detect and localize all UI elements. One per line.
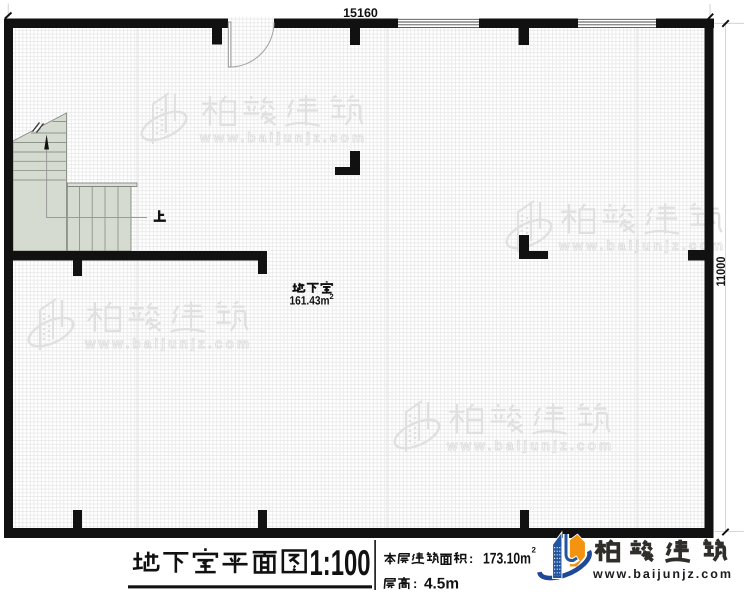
svg-text:11000: 11000 [714, 256, 728, 286]
svg-text:4.5m: 4.5m [424, 576, 459, 593]
svg-text:161.43m: 161.43m [290, 294, 330, 308]
svg-text:15160: 15160 [343, 6, 378, 20]
svg-text:173.10m: 173.10m [483, 551, 531, 568]
svg-text:1:100: 1:100 [310, 542, 371, 583]
svg-text::: : [413, 576, 417, 591]
svg-text:2: 2 [532, 546, 537, 555]
svg-text::: : [469, 551, 473, 566]
svg-text:2: 2 [330, 292, 334, 301]
